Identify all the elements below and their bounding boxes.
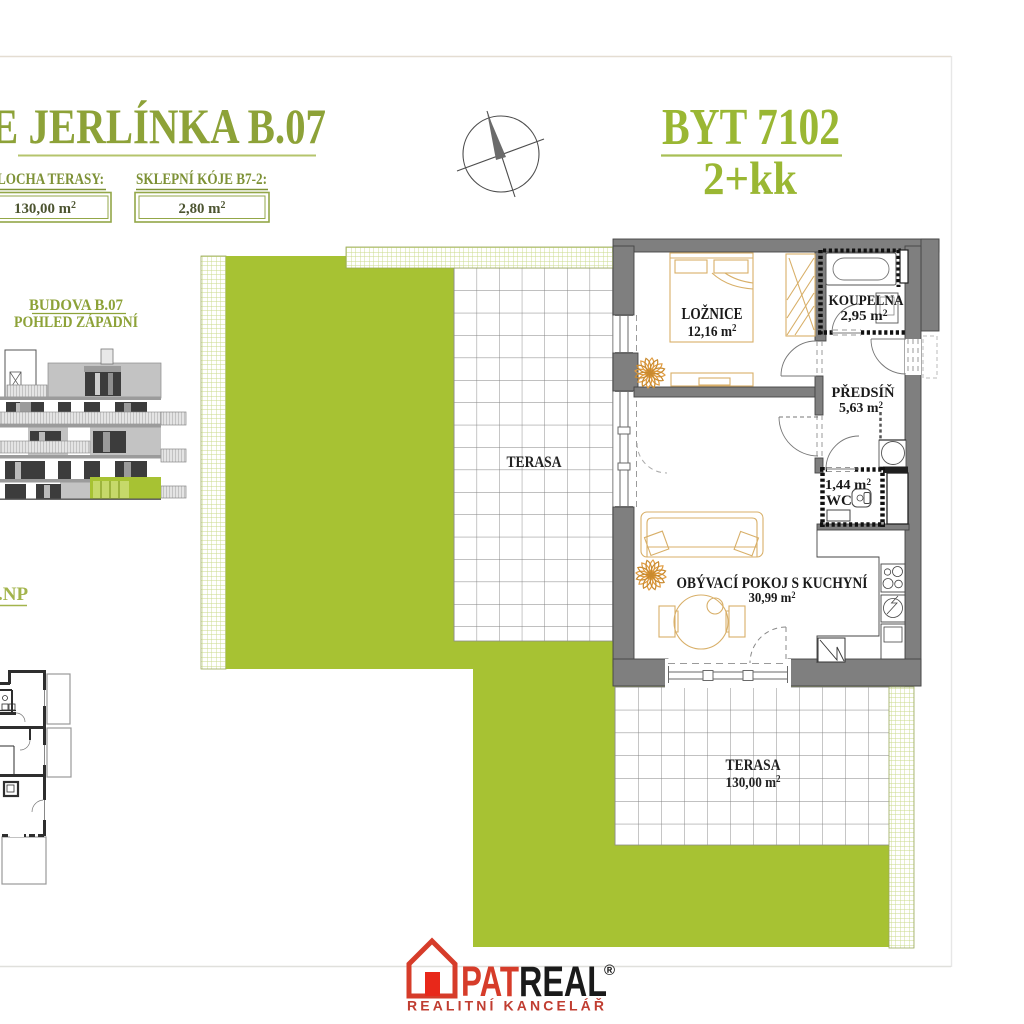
svg-text:BYT 7102: BYT 7102 [662, 99, 840, 156]
svg-text:1,44 m2: 1,44 m2 [825, 477, 872, 493]
svg-text:®: ® [604, 962, 615, 979]
svg-text:SKLEPNÍ KÓJE B7-2:: SKLEPNÍ KÓJE B7-2: [136, 171, 267, 188]
svg-text:130,00 m2: 130,00 m2 [14, 200, 76, 217]
svg-text:.NP: .NP [0, 584, 28, 605]
svg-text:5,63 m2: 5,63 m2 [839, 400, 883, 416]
svg-text:OBÝVACÍ POKOJ S KUCHYNÍ: OBÝVACÍ POKOJ S KUCHYNÍ [677, 573, 868, 592]
svg-text:POHLED ZÁPADNÍ: POHLED ZÁPADNÍ [14, 312, 138, 331]
svg-text:130,00 m2: 130,00 m2 [726, 774, 781, 791]
svg-text:BUDOVA B.07: BUDOVA B.07 [29, 297, 123, 314]
svg-text:PŘEDSÍŇ: PŘEDSÍŇ [832, 384, 895, 401]
svg-text:REALITNÍ KANCELÁŘ: REALITNÍ KANCELÁŘ [407, 997, 604, 1014]
svg-text:30,99 m2: 30,99 m2 [749, 590, 796, 606]
svg-text:WC: WC [826, 493, 852, 509]
svg-text:TERASA: TERASA [726, 757, 781, 774]
svg-text:2,95 m2: 2,95 m2 [841, 308, 889, 324]
svg-text:KOUPELNA: KOUPELNA [829, 293, 904, 309]
svg-text:E JERLÍNKA B.07: E JERLÍNKA B.07 [0, 98, 326, 154]
svg-text:LOŽNICE: LOŽNICE [682, 304, 743, 323]
svg-text:2,80 m2: 2,80 m2 [179, 200, 226, 217]
svg-text:2+kk: 2+kk [703, 153, 798, 205]
svg-text:TERASA: TERASA [507, 454, 562, 471]
svg-text:LOCHA TERASY:: LOCHA TERASY: [0, 171, 104, 188]
svg-text:12,16 m2: 12,16 m2 [688, 323, 737, 340]
